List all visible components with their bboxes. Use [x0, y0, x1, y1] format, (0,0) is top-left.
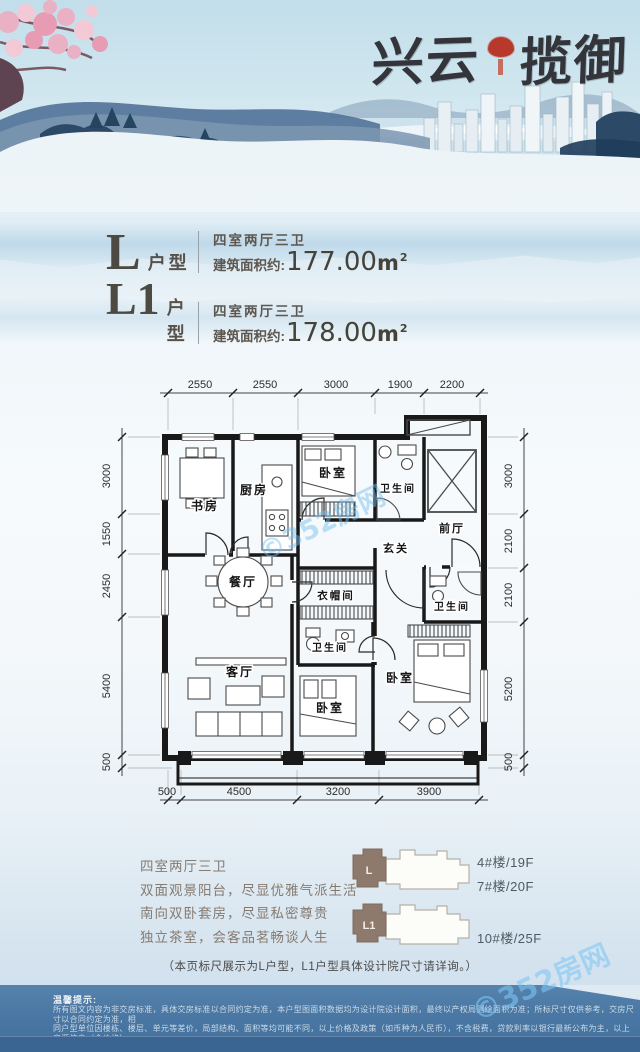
floor-label: 4#楼/19F: [477, 851, 534, 875]
dim-bottom-4: 3900: [417, 786, 441, 798]
unit-rooms: 四室两厅三卫: [213, 229, 408, 249]
room-label-study: 书房: [191, 498, 219, 513]
feature-line: 双面观景阳台，尽显优雅气派生活: [140, 879, 358, 903]
dim-top-1: 2550: [188, 379, 212, 391]
logo-seal-icon: [488, 37, 514, 57]
building-footprint-L: L: [350, 843, 472, 897]
dim-right-2: 2100: [503, 529, 515, 553]
area-value: 177.00: [286, 251, 377, 274]
area-prefix: 建筑面积约:: [213, 325, 285, 345]
building-floor-labels-L1: 10#楼/25F: [477, 927, 542, 951]
feature-line: 四室两厅三卫: [140, 855, 358, 879]
unit-code: L: [106, 232, 141, 274]
unit-type-suffix: 户型: [167, 294, 198, 346]
room-label-dining: 餐厅: [229, 574, 257, 589]
floorplan-poster: 兴云 揽御 L 户型 四室两厅三卫 建筑面积约: 177.00 m 2 L1 户…: [0, 0, 640, 1052]
dim-top-3: 3000: [324, 379, 348, 391]
divider: [198, 231, 199, 273]
dim-left-4: 5400: [101, 674, 113, 698]
dim-left-3: 2450: [101, 574, 113, 598]
dim-right-4: 5200: [503, 677, 515, 701]
unit-rooms: 四室两厅三卫: [213, 300, 408, 320]
feature-list: 四室两厅三卫 双面观景阳台，尽显优雅气派生活 南向双卧套房，尽显私密尊贵 独立茶…: [140, 855, 358, 949]
floor-label: 7#楼/20F: [477, 875, 534, 899]
building-floor-labels-L: 4#楼/19F 7#楼/20F: [477, 851, 534, 899]
unit-code: L1: [106, 281, 160, 318]
area-unit: m: [377, 322, 399, 346]
room-label-bedroom-mid: 卧室: [316, 700, 344, 715]
dim-top-4: 1900: [388, 379, 412, 391]
footprint-unit-label: L1: [363, 920, 376, 932]
dim-left-2: 1550: [101, 522, 113, 546]
dim-top-2: 2550: [253, 379, 277, 391]
dim-bottom-2: 4500: [227, 786, 251, 798]
room-label-kitchen: 厨房: [240, 482, 268, 497]
room-label-cloakroom: 衣帽间: [317, 589, 355, 602]
dim-right-5: 500: [503, 753, 515, 771]
dim-left-1: 3000: [101, 464, 113, 488]
room-label-bath-mid: 卫生间: [312, 641, 348, 654]
dim-bottom-3: 3200: [326, 786, 350, 798]
logo-text-left: 兴云: [371, 17, 482, 96]
area-prefix: 建筑面积约:: [213, 254, 285, 274]
divider: [198, 302, 199, 344]
disclaimer-strip: 温馨提示: 所有图文内容为非交房标准，具体交房标准以合同约定为准，本户型图面积数…: [0, 985, 640, 1052]
scale-note: （本页标尺展示为L户型，L1户型具体设计院尺寸请详询。）: [0, 958, 640, 974]
strip-corner-cut: [545, 985, 640, 1000]
room-label-entry: 玄关: [383, 541, 409, 555]
footprint-unit-label: L: [366, 865, 373, 877]
floor-label: 10#楼/25F: [477, 927, 542, 951]
dim-left-5: 500: [101, 753, 113, 771]
building-footprint-L1: L1: [350, 898, 472, 952]
disclaimer-line: 所有图文内容为非交房标准，具体交房标准以合同约定为准，本户型图面积数据均为设计院…: [53, 1005, 635, 1024]
unit-row-L: L 户型 四室两厅三卫 建筑面积约: 177.00 m 2: [106, 229, 408, 275]
area-superscript: 2: [400, 322, 408, 335]
dim-bottom-1: 500: [158, 786, 176, 798]
room-label-bedroom-right: 卧室: [386, 670, 414, 685]
dim-top-5: 2200: [440, 379, 464, 391]
strip-footer-band: [0, 1036, 640, 1052]
area-unit: m: [377, 251, 399, 275]
area-superscript: 2: [400, 251, 408, 264]
area-value: 178.00: [286, 322, 377, 345]
dim-right-3: 2100: [503, 583, 515, 607]
feature-line: 南向双卧套房，尽显私密尊贵: [140, 902, 358, 926]
room-label-bath-right: 卫生间: [434, 600, 470, 613]
room-label-foyer: 前厅: [439, 521, 465, 535]
room-label-living: 客厅: [225, 664, 254, 679]
brand-logo: 兴云 揽御: [372, 14, 628, 98]
feature-line: 独立茶室，会客品茗畅谈人生: [140, 926, 358, 950]
room-label-bedroom-top: 卧室: [319, 465, 347, 480]
unit-row-L1: L1 户型 四室两厅三卫 建筑面积约: 178.00 m 2: [106, 281, 408, 346]
dim-right-1: 3000: [503, 464, 515, 488]
unit-type-suffix: 户型: [148, 249, 190, 275]
room-label-bath-top: 卫生间: [380, 482, 416, 495]
logo-text-right: 揽御: [519, 17, 630, 96]
floor-plan: 2550 2550 3000 1900 2200 3000 1550 2450 …: [0, 370, 640, 840]
